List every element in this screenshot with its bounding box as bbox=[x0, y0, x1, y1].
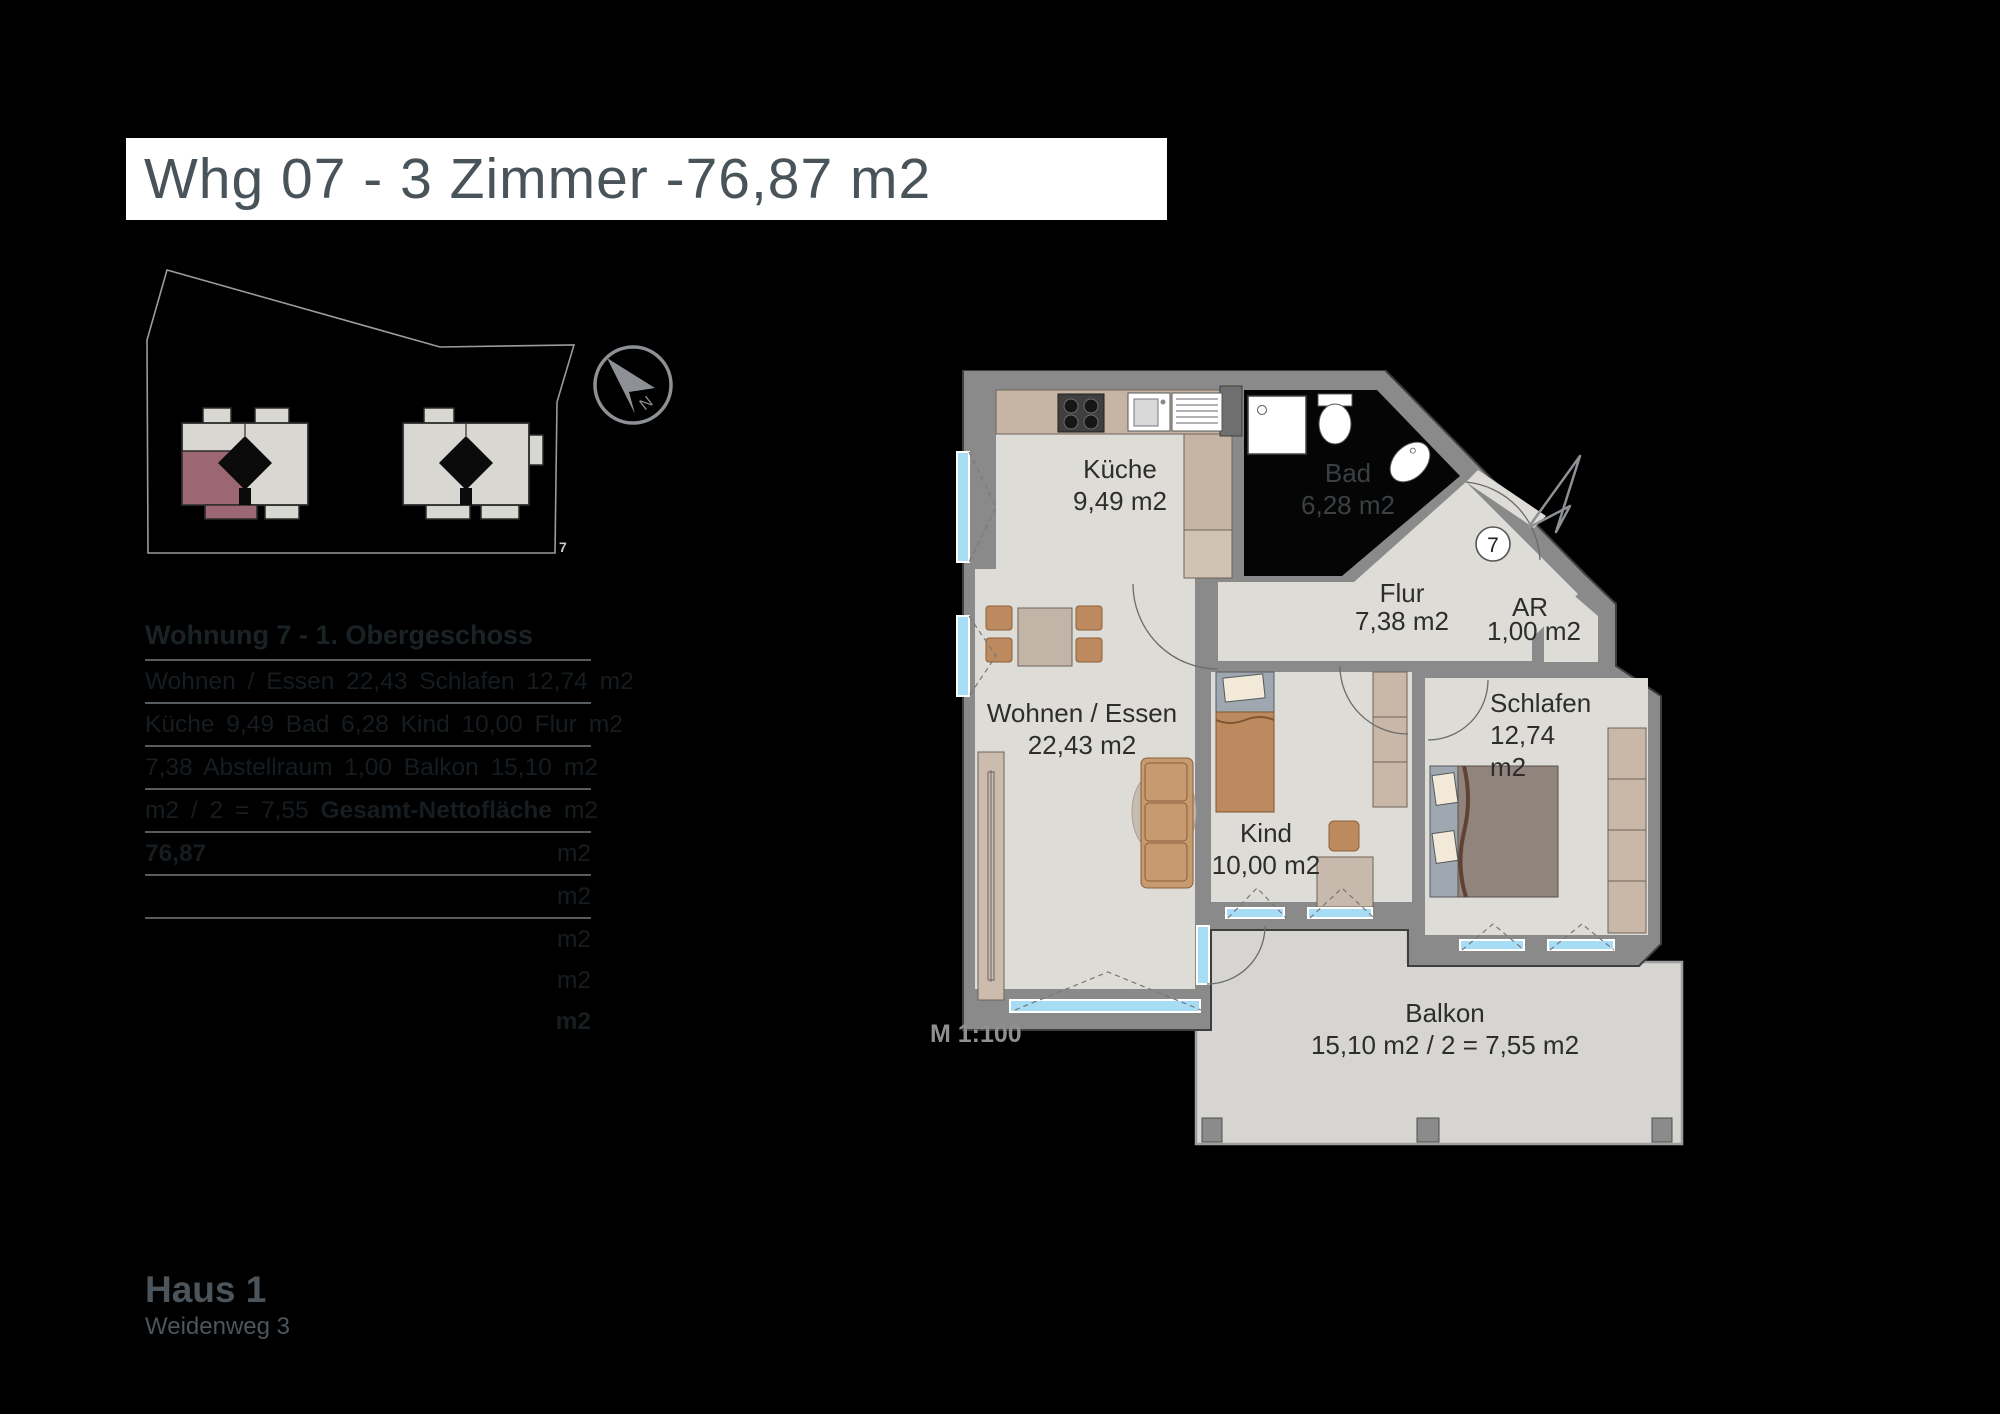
label-wohnen-area: 22,43 m2 bbox=[1028, 730, 1136, 760]
stove-icon bbox=[1058, 394, 1104, 432]
table-row: Wohnen / Essen 22,43 Schlafen 12,74m2 bbox=[145, 661, 591, 704]
label-flur: Flur bbox=[1380, 578, 1425, 608]
toilet-icon bbox=[1318, 394, 1352, 444]
table-row: m2 bbox=[145, 960, 591, 1001]
sink-icon bbox=[1128, 393, 1222, 431]
table-row: m2 bbox=[145, 919, 591, 960]
building-a bbox=[182, 408, 308, 519]
house-street: Weidenweg 3 bbox=[145, 1312, 290, 1342]
label-bad: Bad bbox=[1325, 458, 1371, 488]
table-row: m2 bbox=[145, 1001, 591, 1042]
apartment-number-badge: 7 bbox=[1476, 527, 1510, 561]
page: Whg 07 - 3 Zimmer -76,87 m2 7 bbox=[0, 0, 2000, 1414]
label-balkon: Balkon bbox=[1405, 998, 1485, 1028]
site-plan: 7 N bbox=[115, 200, 695, 590]
table-row: 76,87m2 bbox=[145, 833, 591, 876]
kind-bed bbox=[1216, 672, 1274, 812]
label-ar-area: 1,00 m2 bbox=[1487, 616, 1581, 646]
label-balkon-area: 15,10 m2 / 2 = 7,55 m2 bbox=[1311, 1030, 1579, 1060]
label-kueche: Küche bbox=[1083, 454, 1157, 484]
label-kind: Kind bbox=[1240, 818, 1292, 848]
compass-icon: N bbox=[595, 347, 671, 423]
svg-text:7: 7 bbox=[1487, 534, 1499, 557]
label-wohnen: Wohnen / Essen bbox=[987, 698, 1177, 728]
sofa bbox=[1141, 758, 1193, 888]
label-schlafen-area: 12,74 bbox=[1490, 720, 1555, 750]
label-bad-area: 6,28 m2 bbox=[1301, 490, 1395, 520]
footer: Haus 1 Weidenweg 3 bbox=[145, 1268, 290, 1342]
house-title: Haus 1 bbox=[145, 1268, 290, 1312]
table-header: Wohnung 7 - 1. Obergeschoss bbox=[145, 620, 591, 661]
scale-label: M 1:100 bbox=[930, 1020, 1022, 1048]
label-schlafen: Schlafen bbox=[1490, 688, 1591, 718]
kind-chair bbox=[1329, 821, 1359, 851]
plot-number: 7 bbox=[559, 539, 567, 555]
table-row: 7,38 Abstellraum 1,00 Balkon 15,10m2 bbox=[145, 747, 591, 790]
kind-wardrobe bbox=[1373, 672, 1407, 807]
table-row: Küche 9,49 Bad 6,28 Kind 10,00 Flurm2 bbox=[145, 704, 591, 747]
compass-north-label: N bbox=[637, 393, 657, 414]
area-table: Wohnung 7 - 1. Obergeschoss Wohnen / Ess… bbox=[145, 620, 591, 1042]
label-kueche-area: 9,49 m2 bbox=[1073, 486, 1167, 516]
label-kind-area: 10,00 m2 bbox=[1212, 850, 1320, 880]
floor-plan: Küche 9,49 m2 Bad 6,28 m2 Flur 7,38 m2 A… bbox=[930, 370, 1740, 1160]
table-row: m2 / 2 = 7,55 Gesamt-Nettofläche m2 bbox=[145, 790, 591, 833]
kind-desk bbox=[1317, 857, 1373, 907]
building-b bbox=[403, 408, 543, 519]
label-schlafen-area2: m2 bbox=[1490, 752, 1526, 782]
label-flur-area: 7,38 m2 bbox=[1355, 606, 1449, 636]
table-row: m2 bbox=[145, 876, 591, 919]
shower-icon bbox=[1248, 396, 1306, 454]
